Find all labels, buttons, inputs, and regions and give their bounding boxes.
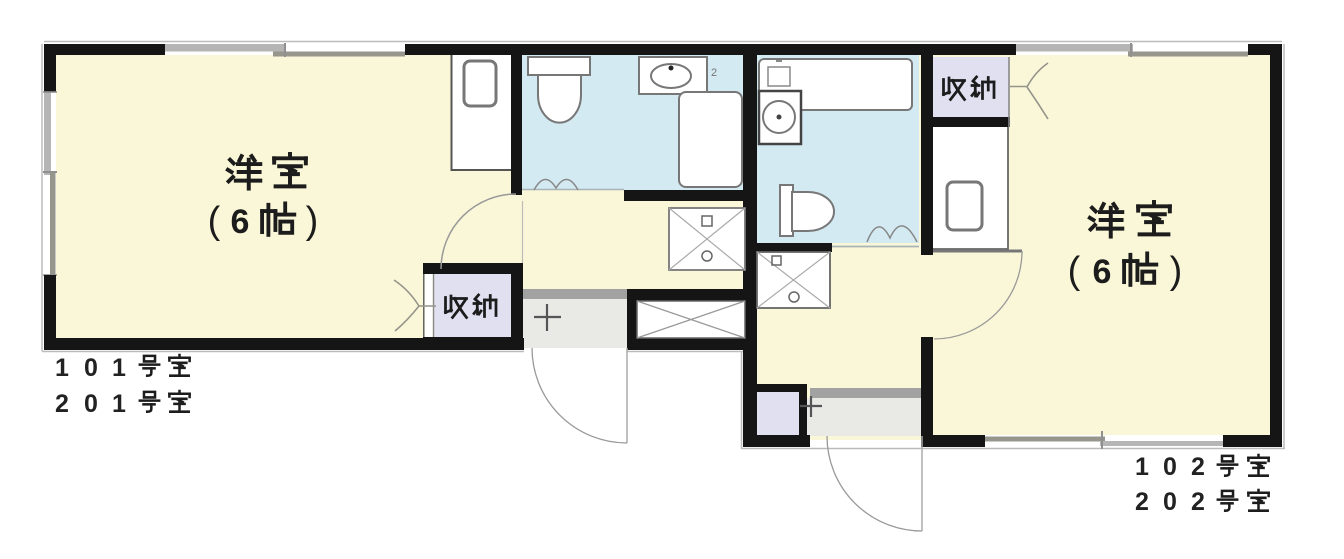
svg-text:2: 2: [711, 67, 717, 79]
svg-text:(: (: [208, 200, 221, 242]
svg-text:2: 2: [1191, 488, 1205, 516]
svg-text:2: 2: [55, 390, 69, 418]
svg-text:1: 1: [112, 354, 126, 382]
svg-text:0: 0: [84, 390, 98, 418]
svg-text:6: 6: [231, 203, 250, 241]
svg-text:): ): [1170, 250, 1183, 292]
svg-text:): ): [306, 200, 319, 242]
svg-text:0: 0: [1163, 453, 1177, 481]
svg-text:1: 1: [1135, 453, 1149, 481]
svg-text:1: 1: [112, 390, 126, 418]
svg-text:1: 1: [55, 354, 69, 382]
svg-text:2: 2: [1135, 488, 1149, 516]
svg-text:6: 6: [1093, 253, 1112, 291]
svg-text:0: 0: [1163, 488, 1177, 516]
svg-text:2: 2: [1191, 453, 1205, 481]
svg-text:0: 0: [84, 354, 98, 382]
svg-text:(: (: [1068, 250, 1081, 292]
